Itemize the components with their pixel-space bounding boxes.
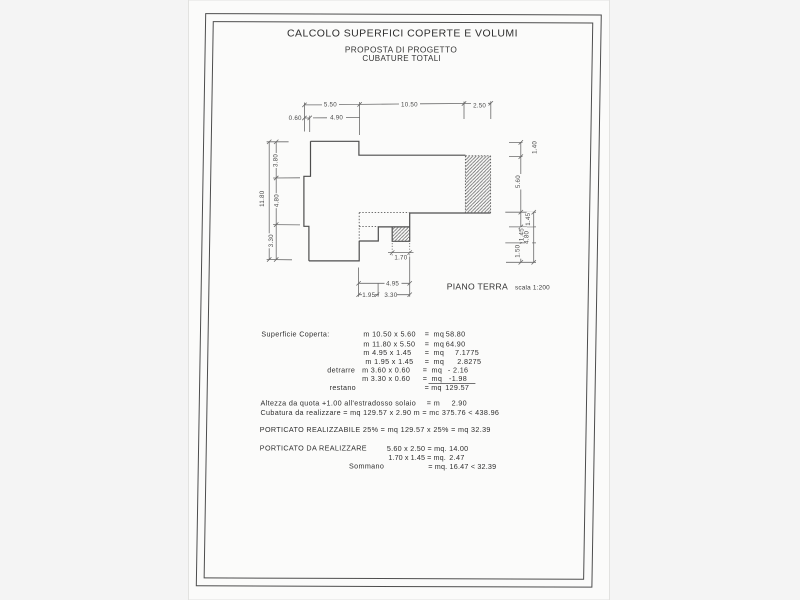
svg-text:CALCOLO SUPERFICI COPERTE E VO: CALCOLO SUPERFICI COPERTE E VOLUMI — [287, 28, 518, 40]
svg-text:= mq. 16.47 < 32.39: = mq. 16.47 < 32.39 — [428, 462, 496, 471]
svg-text:3.30: 3.30 — [268, 234, 275, 247]
svg-text:Superficie Coperta:: Superficie Coperta: — [261, 330, 329, 339]
svg-text:-1.98: -1.98 — [449, 374, 467, 383]
svg-text:mq: mq — [434, 348, 445, 357]
svg-text:2.47: 2.47 — [449, 453, 464, 462]
svg-text:CUBATURE TOTALI: CUBATURE TOTALI — [362, 54, 441, 63]
svg-text:mq: mq — [431, 383, 442, 392]
svg-text:PROPOSTA DI PROGETTO: PROPOSTA DI PROGETTO — [345, 45, 457, 55]
svg-text:1.95: 1.95 — [362, 292, 375, 299]
svg-text:Cubatura da realizzare = mq 1: Cubatura da realizzare = mq 129.57 x 2.9… — [261, 408, 500, 417]
svg-text:mq: mq — [432, 365, 443, 374]
svg-text:m 10.50 x 5.60: m 10.50 x 5.60 — [363, 330, 415, 339]
svg-text:3.80: 3.80 — [273, 154, 280, 167]
svg-text:=: = — [425, 339, 430, 348]
svg-text:4.95: 4.95 — [386, 281, 399, 288]
svg-text:=: = — [423, 374, 428, 383]
svg-text:PORTICATO REALIZZABILE 25% = m: PORTICATO REALIZZABILE 25% = mq 129.57 x… — [260, 425, 491, 434]
svg-text:=: = — [425, 348, 430, 357]
svg-text:3.30: 3.30 — [384, 292, 397, 299]
svg-text:4.80: 4.80 — [524, 230, 531, 243]
svg-text:58.80: 58.80 — [446, 330, 466, 339]
svg-text:restano: restano — [330, 383, 356, 392]
svg-text:1.40: 1.40 — [532, 141, 539, 154]
svg-text:2.50: 2.50 — [473, 102, 486, 109]
svg-text:129.57: 129.57 — [445, 383, 469, 392]
svg-text:PIANO TERRA: PIANO TERRA — [447, 281, 508, 291]
svg-text:64.90: 64.90 — [446, 339, 466, 348]
svg-text:m 3.60 x 0.60: m 3.60 x 0.60 — [362, 365, 410, 374]
svg-text:10.50: 10.50 — [401, 101, 418, 108]
svg-text:m 11.80 x 5.50: m 11.80 x 5.50 — [363, 339, 415, 348]
svg-text:PORTICATO DA REALIZZARE: PORTICATO DA REALIZZARE — [260, 443, 367, 452]
svg-text:5.60 x 2.50 = mq. 14.00: 5.60 x 2.50 = mq. 14.00 — [387, 444, 468, 453]
svg-text:m 4.95 x 1.45: m 4.95 x 1.45 — [363, 348, 411, 357]
svg-text:1.45: 1.45 — [525, 212, 532, 225]
svg-text:- 2.16: - 2.16 — [448, 365, 468, 374]
svg-text:mq: mq — [434, 339, 445, 348]
svg-text:11.80: 11.80 — [259, 190, 266, 207]
svg-text:1.70: 1.70 — [394, 254, 407, 261]
svg-text:=: = — [425, 383, 430, 392]
svg-text:4.80: 4.80 — [273, 194, 280, 207]
svg-text:1.70 x 1.45 = mq.: 1.70 x 1.45 = mq. — [388, 453, 445, 462]
svg-text:2.90: 2.90 — [452, 399, 467, 408]
svg-text:7.1775: 7.1775 — [455, 348, 479, 357]
svg-text:4.90: 4.90 — [330, 115, 343, 122]
svg-text:1.50: 1.50 — [515, 244, 522, 257]
svg-text:scala 1:200: scala 1:200 — [515, 285, 550, 292]
svg-text:= m: = m — [427, 399, 440, 408]
svg-text:0.60: 0.60 — [289, 115, 302, 122]
svg-text:Sommano: Sommano — [349, 462, 384, 471]
svg-text:detrarre: detrarre — [327, 365, 355, 374]
svg-text:mq: mq — [432, 374, 443, 383]
svg-text:m 3.30 x 0.60: m 3.30 x 0.60 — [362, 374, 410, 383]
svg-text:=: = — [425, 330, 430, 339]
svg-text:=: = — [423, 365, 428, 374]
svg-text:5.50: 5.50 — [324, 102, 337, 109]
svg-text:5.60: 5.60 — [515, 175, 522, 188]
svg-text:Altezza da quota +1.00 all'est: Altezza da quota +1.00 all'estradosso so… — [261, 399, 417, 408]
svg-text:mq: mq — [434, 330, 445, 339]
